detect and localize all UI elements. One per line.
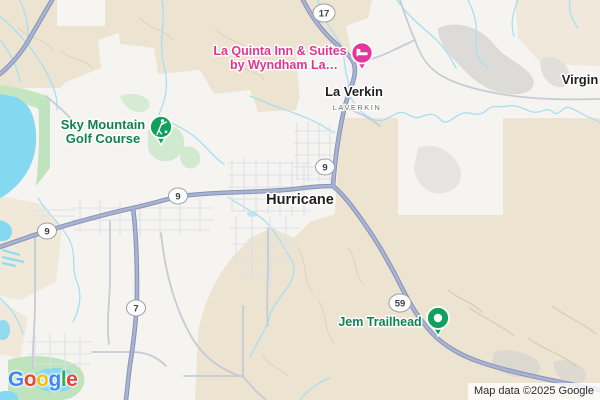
google-logo[interactable]: Google [8,368,77,392]
pin-circle [150,116,172,138]
route-shield-17: 17 [313,4,335,22]
trailhead-dot-icon [434,314,442,322]
svg-text:59: 59 [395,299,406,310]
poi-label-la-quinta-line2[interactable]: by Wyndham La… [230,58,338,72]
map-attribution: Map data ©2025 Google [468,383,600,400]
route-shield-9-mid: 9 [169,188,188,204]
route-shield-9-west: 9 [38,223,57,239]
poi-label-sky-mountain-line1[interactable]: Sky Mountain [61,117,146,132]
logo-letter: e [66,368,77,391]
poi-label-sky-mountain-line2[interactable]: Golf Course [66,131,140,146]
route-shield-9-junction: 9 [316,159,335,175]
svg-text:7: 7 [133,304,138,315]
route-shield-59: 59 [389,294,411,312]
svg-text:9: 9 [44,227,49,238]
city-label-hurricane: Hurricane [266,192,334,208]
city-label-virgin: Virgin [562,72,599,87]
poi-label-jem-trailhead[interactable]: Jem Trailhead [338,315,421,329]
logo-letter: o [36,368,48,391]
city-label-la-verkin: La Verkin [325,84,383,99]
logo-letter: G [8,368,24,391]
district-label-laverkin: LAVERKIN [333,103,382,112]
logo-letter: o [24,368,36,391]
svg-text:9: 9 [322,163,327,174]
route-shield-7: 7 [127,300,146,316]
poi-label-la-quinta-line1[interactable]: La Quinta Inn & Suites [213,44,346,58]
map-canvas[interactable]: La Quinta Inn & Suites by Wyndham La… Sk… [0,0,600,400]
logo-letter: g [49,368,61,391]
svg-text:17: 17 [319,9,330,20]
svg-text:9: 9 [175,192,180,203]
